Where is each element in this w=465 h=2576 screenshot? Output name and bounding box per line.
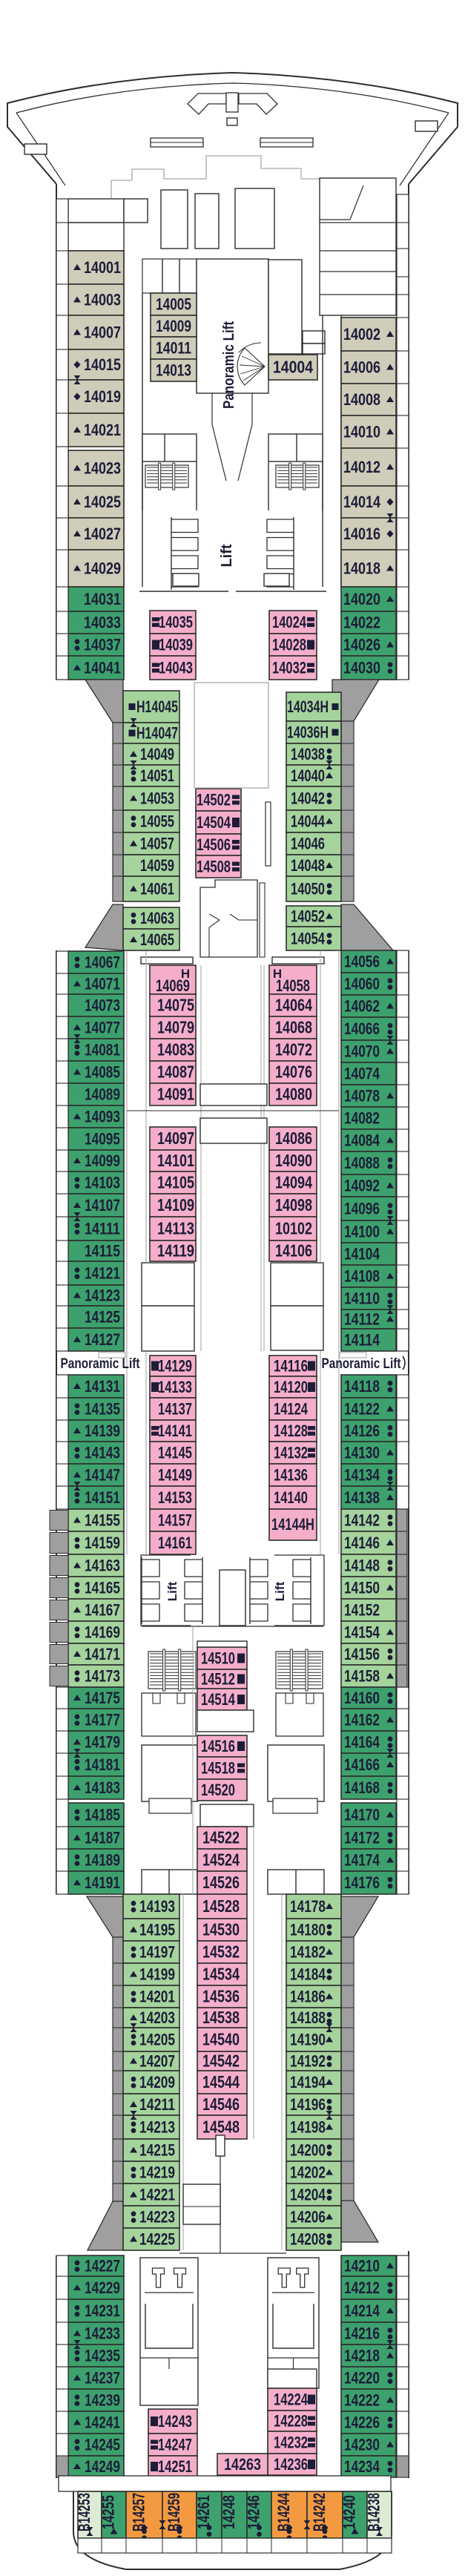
svg-text:14142: 14142 xyxy=(344,1511,380,1530)
svg-text:14011: 14011 xyxy=(156,339,191,358)
svg-text:14026: 14026 xyxy=(343,636,380,654)
svg-text:14139: 14139 xyxy=(85,1422,120,1440)
svg-text:14196: 14196 xyxy=(290,2095,326,2114)
svg-text:14520: 14520 xyxy=(201,1781,235,1799)
svg-text:14204: 14204 xyxy=(290,2186,326,2204)
svg-text:14226: 14226 xyxy=(344,2414,380,2432)
svg-text:14147: 14147 xyxy=(85,1466,120,1485)
svg-text:14051: 14051 xyxy=(140,766,174,785)
svg-text:14510: 14510 xyxy=(201,1649,235,1668)
svg-text:14095: 14095 xyxy=(85,1130,120,1149)
svg-text:14096: 14096 xyxy=(344,1200,380,1218)
svg-text:14077: 14077 xyxy=(85,1019,120,1037)
svg-text:14126: 14126 xyxy=(344,1422,380,1440)
svg-text:14179: 14179 xyxy=(85,1733,120,1752)
svg-text:14235: 14235 xyxy=(85,2347,120,2365)
svg-text:14044: 14044 xyxy=(291,812,326,831)
svg-text:14020: 14020 xyxy=(343,590,380,608)
svg-text:14057: 14057 xyxy=(140,835,174,853)
svg-text:14162: 14162 xyxy=(344,1711,380,1729)
svg-text:14082: 14082 xyxy=(344,1109,380,1128)
svg-text:14058: 14058 xyxy=(276,976,310,995)
svg-text:14255: 14255 xyxy=(99,2495,118,2529)
svg-text:14098: 14098 xyxy=(275,1195,312,1215)
svg-text:14166: 14166 xyxy=(344,1755,380,1774)
svg-text:14173: 14173 xyxy=(85,1667,120,1686)
svg-text:14090: 14090 xyxy=(275,1151,312,1170)
svg-text:14054: 14054 xyxy=(291,930,326,948)
svg-text:Panoramic Lift: Panoramic Lift xyxy=(322,1356,402,1372)
svg-text:14163: 14163 xyxy=(85,1557,120,1575)
svg-text:14542: 14542 xyxy=(202,2051,240,2071)
svg-text:14035: 14035 xyxy=(159,613,193,631)
svg-text:14230: 14230 xyxy=(344,2436,380,2454)
svg-text:Panoramic Lift: Panoramic Lift xyxy=(61,1356,141,1372)
svg-text:14209: 14209 xyxy=(139,2073,175,2092)
svg-text:14151: 14151 xyxy=(85,1488,120,1507)
svg-text:14072: 14072 xyxy=(275,1040,312,1059)
svg-text:14263: 14263 xyxy=(224,2455,261,2474)
svg-text:14183: 14183 xyxy=(85,1778,120,1797)
svg-text:14532: 14532 xyxy=(202,1942,240,1962)
svg-text:14121: 14121 xyxy=(85,1264,120,1283)
svg-text:14093: 14093 xyxy=(85,1108,120,1126)
svg-text:14056: 14056 xyxy=(344,953,380,971)
svg-text:14176: 14176 xyxy=(344,1873,380,1892)
svg-text:14091: 14091 xyxy=(157,1085,194,1104)
svg-text:14240: 14240 xyxy=(340,2495,359,2529)
svg-text:14187: 14187 xyxy=(85,1829,120,1847)
svg-text:14088: 14088 xyxy=(344,1154,380,1172)
svg-text:14189: 14189 xyxy=(85,1851,120,1870)
svg-text:14198: 14198 xyxy=(290,2118,326,2137)
svg-text:14246: 14246 xyxy=(245,2495,263,2529)
svg-text:14207: 14207 xyxy=(139,2052,175,2071)
svg-text:14059: 14059 xyxy=(140,856,174,875)
svg-text:14110: 14110 xyxy=(344,1289,380,1308)
svg-text:14206: 14206 xyxy=(290,2208,326,2227)
svg-text:14007: 14007 xyxy=(84,323,121,342)
svg-text:14036H: 14036H xyxy=(287,723,329,742)
svg-text:14170: 14170 xyxy=(344,1806,380,1824)
svg-text:14071: 14071 xyxy=(85,975,120,993)
svg-text:14084: 14084 xyxy=(344,1131,380,1150)
svg-text:14080: 14080 xyxy=(275,1085,312,1104)
svg-text:14216: 14216 xyxy=(344,2324,380,2343)
svg-text:14225: 14225 xyxy=(139,2230,175,2249)
svg-text:14201: 14201 xyxy=(139,1988,175,2006)
svg-text:Lift: Lift xyxy=(165,1581,179,1601)
svg-text:14540: 14540 xyxy=(202,2030,240,2049)
svg-text:14031: 14031 xyxy=(84,590,121,608)
svg-text:14002: 14002 xyxy=(343,325,380,344)
svg-text:14185: 14185 xyxy=(85,1806,120,1824)
svg-text:14241: 14241 xyxy=(85,2414,120,2432)
svg-text:14233: 14233 xyxy=(85,2324,120,2343)
svg-text:14063: 14063 xyxy=(140,909,174,927)
svg-text:14079: 14079 xyxy=(157,1018,194,1037)
svg-text:14114: 14114 xyxy=(344,1331,380,1350)
svg-text:14130: 14130 xyxy=(344,1444,380,1462)
svg-text:14220: 14220 xyxy=(344,2369,380,2388)
svg-text:14502: 14502 xyxy=(197,791,231,809)
svg-text:14053: 14053 xyxy=(140,789,174,808)
svg-text:14129: 14129 xyxy=(158,1357,192,1376)
svg-text:14128: 14128 xyxy=(274,1422,308,1440)
svg-text:14087: 14087 xyxy=(157,1062,194,1082)
svg-text:H14045: H14045 xyxy=(136,697,178,716)
svg-text:14113: 14113 xyxy=(157,1219,194,1238)
svg-text:14227: 14227 xyxy=(85,2257,120,2276)
svg-text:14138: 14138 xyxy=(344,1488,380,1507)
svg-text:14534: 14534 xyxy=(202,1965,240,1984)
svg-text:14041: 14041 xyxy=(84,659,121,677)
svg-text:14218: 14218 xyxy=(344,2347,380,2365)
svg-text:14027: 14027 xyxy=(84,525,121,543)
svg-text:14136: 14136 xyxy=(274,1466,308,1485)
svg-text:14184: 14184 xyxy=(290,1965,326,1984)
svg-text:14003: 14003 xyxy=(84,291,121,309)
svg-text:14236: 14236 xyxy=(274,2455,308,2474)
svg-text:14086: 14086 xyxy=(275,1128,312,1148)
svg-text:14167: 14167 xyxy=(85,1601,120,1620)
svg-text:14021: 14021 xyxy=(84,421,121,439)
svg-text:14190: 14190 xyxy=(290,2031,326,2049)
svg-text:14232: 14232 xyxy=(274,2434,308,2452)
svg-text:B14253: B14253 xyxy=(75,2493,93,2531)
svg-text:14194: 14194 xyxy=(290,2073,326,2092)
svg-text:14127: 14127 xyxy=(85,1330,120,1349)
svg-text:14155: 14155 xyxy=(85,1511,120,1530)
svg-text:14156: 14156 xyxy=(344,1645,380,1663)
svg-text:14172: 14172 xyxy=(344,1829,380,1847)
svg-text:14067: 14067 xyxy=(85,953,120,972)
svg-text:14018: 14018 xyxy=(343,559,380,578)
svg-text:14247: 14247 xyxy=(158,2436,192,2454)
svg-text:14068: 14068 xyxy=(275,1018,312,1037)
svg-text:14081: 14081 xyxy=(85,1041,120,1059)
svg-text:14153: 14153 xyxy=(158,1488,192,1507)
svg-text:14019: 14019 xyxy=(84,387,121,406)
svg-text:H14047: H14047 xyxy=(136,724,178,743)
svg-text:14161: 14161 xyxy=(158,1534,192,1552)
svg-text:14192: 14192 xyxy=(290,2052,326,2071)
svg-text:14122: 14122 xyxy=(344,1400,380,1419)
svg-text:14212: 14212 xyxy=(344,2278,380,2297)
svg-text:14030: 14030 xyxy=(343,659,380,677)
svg-text:14013: 14013 xyxy=(156,361,191,380)
svg-text:14143: 14143 xyxy=(85,1444,120,1462)
svg-text:14048: 14048 xyxy=(291,856,325,875)
svg-text:14014: 14014 xyxy=(343,493,381,511)
svg-text:14140: 14140 xyxy=(274,1488,308,1507)
svg-text:14069: 14069 xyxy=(156,976,190,995)
svg-text:14038: 14038 xyxy=(291,745,325,763)
svg-text:14169: 14169 xyxy=(85,1623,120,1642)
svg-text:14205: 14205 xyxy=(139,2031,175,2049)
svg-text:14544: 14544 xyxy=(202,2072,240,2092)
svg-text:Lift: Lift xyxy=(273,1581,287,1601)
svg-text:14022: 14022 xyxy=(343,614,380,632)
svg-text:14097: 14097 xyxy=(157,1128,194,1148)
svg-text:14049: 14049 xyxy=(140,745,174,763)
svg-text:14111: 14111 xyxy=(85,1220,120,1238)
svg-text:14070: 14070 xyxy=(344,1042,380,1061)
svg-text:14516: 14516 xyxy=(201,1737,235,1755)
svg-text:14065: 14065 xyxy=(140,930,174,949)
svg-text:14165: 14165 xyxy=(85,1579,120,1597)
svg-text:14214: 14214 xyxy=(344,2301,380,2320)
svg-text:14064: 14064 xyxy=(275,996,312,1015)
svg-text:14249: 14249 xyxy=(85,2457,120,2476)
svg-text:14144H: 14144H xyxy=(271,1515,314,1534)
svg-text:14164: 14164 xyxy=(344,1733,380,1752)
svg-text:14154: 14154 xyxy=(344,1623,380,1642)
svg-text:14197: 14197 xyxy=(139,1943,175,1962)
svg-text:14174: 14174 xyxy=(344,1851,380,1870)
svg-text:14213: 14213 xyxy=(139,2118,175,2137)
svg-text:14008: 14008 xyxy=(343,390,380,409)
svg-text:14222: 14222 xyxy=(344,2391,380,2410)
svg-text:14107: 14107 xyxy=(85,1196,120,1215)
svg-text:14191: 14191 xyxy=(85,1873,120,1892)
svg-text:14078: 14078 xyxy=(344,1087,380,1105)
svg-text:14120: 14120 xyxy=(274,1378,308,1396)
svg-text:14135: 14135 xyxy=(85,1400,120,1419)
svg-text:14168: 14168 xyxy=(344,1778,380,1797)
svg-text:14016: 14016 xyxy=(343,525,380,543)
svg-text:14237: 14237 xyxy=(85,2369,120,2388)
svg-text:14039: 14039 xyxy=(159,636,193,654)
svg-text:14092: 14092 xyxy=(344,1177,380,1195)
svg-text:14200: 14200 xyxy=(290,2141,326,2160)
svg-text:14261: 14261 xyxy=(194,2495,213,2529)
svg-text:14248: 14248 xyxy=(220,2495,238,2529)
svg-text:14245: 14245 xyxy=(85,2436,120,2454)
svg-text:14522: 14522 xyxy=(202,1828,240,1847)
svg-text:14203: 14203 xyxy=(139,2008,175,2027)
svg-text:14141: 14141 xyxy=(158,1422,192,1440)
svg-text:14508: 14508 xyxy=(197,858,231,876)
svg-text:14210: 14210 xyxy=(344,2257,380,2276)
svg-text:14228: 14228 xyxy=(274,2412,308,2431)
svg-text:14221: 14221 xyxy=(139,2186,175,2204)
svg-text:14005: 14005 xyxy=(156,295,191,314)
svg-text:14034H: 14034H xyxy=(287,697,329,716)
svg-text:14528: 14528 xyxy=(202,1896,240,1916)
svg-text:14229: 14229 xyxy=(85,2278,120,2297)
svg-text:14243: 14243 xyxy=(158,2412,192,2431)
svg-text:14037: 14037 xyxy=(84,636,121,654)
svg-text:14149: 14149 xyxy=(158,1466,192,1485)
svg-text:14076: 14076 xyxy=(275,1062,312,1082)
svg-text:14108: 14108 xyxy=(344,1267,380,1286)
svg-text:14182: 14182 xyxy=(290,1943,326,1962)
svg-text:14074: 14074 xyxy=(344,1065,380,1083)
svg-text:14106: 14106 xyxy=(275,1241,312,1261)
svg-text:14181: 14181 xyxy=(85,1755,120,1774)
svg-text:14116: 14116 xyxy=(274,1357,308,1376)
svg-text:14083: 14083 xyxy=(157,1040,194,1059)
svg-text:14105: 14105 xyxy=(157,1173,194,1192)
svg-text:14223: 14223 xyxy=(139,2208,175,2227)
svg-text:14109: 14109 xyxy=(157,1195,194,1215)
svg-text:14158: 14158 xyxy=(344,1667,380,1686)
svg-text:14125: 14125 xyxy=(85,1308,120,1327)
svg-text:14024: 14024 xyxy=(272,613,307,631)
svg-text:14060: 14060 xyxy=(344,975,380,993)
svg-text:14199: 14199 xyxy=(139,1965,175,1984)
svg-text:14042: 14042 xyxy=(291,789,325,808)
svg-text:14055: 14055 xyxy=(140,812,174,831)
svg-text:14538: 14538 xyxy=(202,2008,240,2027)
svg-text:10102: 10102 xyxy=(275,1219,312,1238)
svg-text:14178: 14178 xyxy=(290,1897,326,1916)
svg-text:14137: 14137 xyxy=(158,1400,192,1419)
svg-text:14157: 14157 xyxy=(158,1511,192,1530)
svg-text:14032: 14032 xyxy=(272,659,306,677)
svg-text:14101: 14101 xyxy=(157,1151,194,1170)
svg-text:14514: 14514 xyxy=(201,1690,236,1709)
svg-text:14052: 14052 xyxy=(291,907,325,926)
svg-text:14160: 14160 xyxy=(344,1689,380,1707)
svg-text:14180: 14180 xyxy=(290,1921,326,1939)
svg-text:14100: 14100 xyxy=(344,1223,380,1241)
svg-text:14518: 14518 xyxy=(201,1759,235,1778)
svg-text:14099: 14099 xyxy=(85,1151,120,1170)
svg-text:14148: 14148 xyxy=(344,1557,380,1575)
svg-text:14043: 14043 xyxy=(159,659,193,677)
svg-text:14224: 14224 xyxy=(274,2391,309,2409)
svg-text:14211: 14211 xyxy=(139,2095,175,2114)
svg-text:14530: 14530 xyxy=(202,1920,240,1939)
svg-text:14188: 14188 xyxy=(290,2008,326,2027)
svg-text:14146: 14146 xyxy=(344,1534,380,1552)
svg-text:14028: 14028 xyxy=(272,636,306,654)
svg-text:14208: 14208 xyxy=(290,2230,326,2249)
svg-text:14009: 14009 xyxy=(156,317,191,335)
svg-text:14050: 14050 xyxy=(291,880,325,898)
svg-text:B14238: B14238 xyxy=(365,2493,383,2531)
svg-text:14094: 14094 xyxy=(275,1173,312,1192)
svg-text:14025: 14025 xyxy=(84,493,121,511)
svg-text:14202: 14202 xyxy=(290,2163,326,2182)
svg-text:14152: 14152 xyxy=(344,1601,380,1620)
svg-text:14134: 14134 xyxy=(344,1466,380,1485)
svg-text:14015: 14015 xyxy=(84,355,121,374)
svg-text:14171: 14171 xyxy=(85,1645,120,1663)
svg-text:14512: 14512 xyxy=(201,1670,235,1689)
svg-text:14133: 14133 xyxy=(158,1378,192,1396)
svg-text:14526: 14526 xyxy=(202,1873,240,1892)
svg-text:14123: 14123 xyxy=(85,1287,120,1305)
svg-text:14010: 14010 xyxy=(343,423,380,441)
svg-text:14023: 14023 xyxy=(84,459,121,478)
svg-text:14506: 14506 xyxy=(197,835,231,854)
svg-text:14548: 14548 xyxy=(202,2117,240,2137)
svg-text:14193: 14193 xyxy=(139,1897,175,1916)
svg-text:14075: 14075 xyxy=(157,996,194,1015)
svg-text:14186: 14186 xyxy=(290,1988,326,2006)
svg-text:14115: 14115 xyxy=(85,1242,120,1261)
svg-text:14073: 14073 xyxy=(85,996,120,1015)
svg-text:14004: 14004 xyxy=(273,358,313,377)
svg-text:14536: 14536 xyxy=(202,1987,240,2006)
svg-text:14089: 14089 xyxy=(85,1085,120,1104)
svg-text:14112: 14112 xyxy=(344,1310,380,1329)
svg-text:14195: 14195 xyxy=(139,1921,175,1939)
svg-text:14085: 14085 xyxy=(85,1063,120,1082)
svg-text:14033: 14033 xyxy=(84,614,121,632)
svg-text:14124: 14124 xyxy=(274,1400,309,1419)
svg-text:14119: 14119 xyxy=(157,1241,194,1261)
svg-text:Lift: Lift xyxy=(219,544,235,567)
svg-text:14066: 14066 xyxy=(344,1019,380,1038)
svg-text:14046: 14046 xyxy=(291,835,325,853)
svg-text:14061: 14061 xyxy=(140,880,174,898)
svg-text:14234: 14234 xyxy=(344,2457,380,2476)
svg-text:14104: 14104 xyxy=(344,1245,380,1264)
svg-text:14546: 14546 xyxy=(202,2094,240,2114)
svg-text:14145: 14145 xyxy=(158,1444,192,1462)
svg-text:14103: 14103 xyxy=(85,1174,120,1192)
svg-text:14150: 14150 xyxy=(344,1579,380,1597)
svg-text:14001: 14001 xyxy=(84,258,121,277)
svg-text:Panoramic Lift: Panoramic Lift xyxy=(221,321,237,409)
svg-text:14006: 14006 xyxy=(343,358,380,377)
svg-text:14159: 14159 xyxy=(85,1534,120,1552)
svg-text:14177: 14177 xyxy=(85,1711,120,1729)
svg-text:14062: 14062 xyxy=(344,997,380,1016)
svg-text:14504: 14504 xyxy=(197,813,231,832)
svg-text:14231: 14231 xyxy=(85,2301,120,2320)
svg-text:14029: 14029 xyxy=(84,559,121,578)
svg-text:14118: 14118 xyxy=(344,1377,380,1396)
svg-text:14215: 14215 xyxy=(139,2141,175,2160)
svg-text:14239: 14239 xyxy=(85,2391,120,2410)
svg-text:14251: 14251 xyxy=(158,2457,192,2476)
svg-text:14012: 14012 xyxy=(343,458,380,476)
svg-text:14131: 14131 xyxy=(85,1377,120,1396)
svg-text:14132: 14132 xyxy=(274,1444,308,1462)
svg-text:14219: 14219 xyxy=(139,2163,175,2182)
svg-text:14040: 14040 xyxy=(291,766,325,785)
svg-text:14175: 14175 xyxy=(85,1689,120,1707)
svg-text:14524: 14524 xyxy=(202,1850,240,1870)
